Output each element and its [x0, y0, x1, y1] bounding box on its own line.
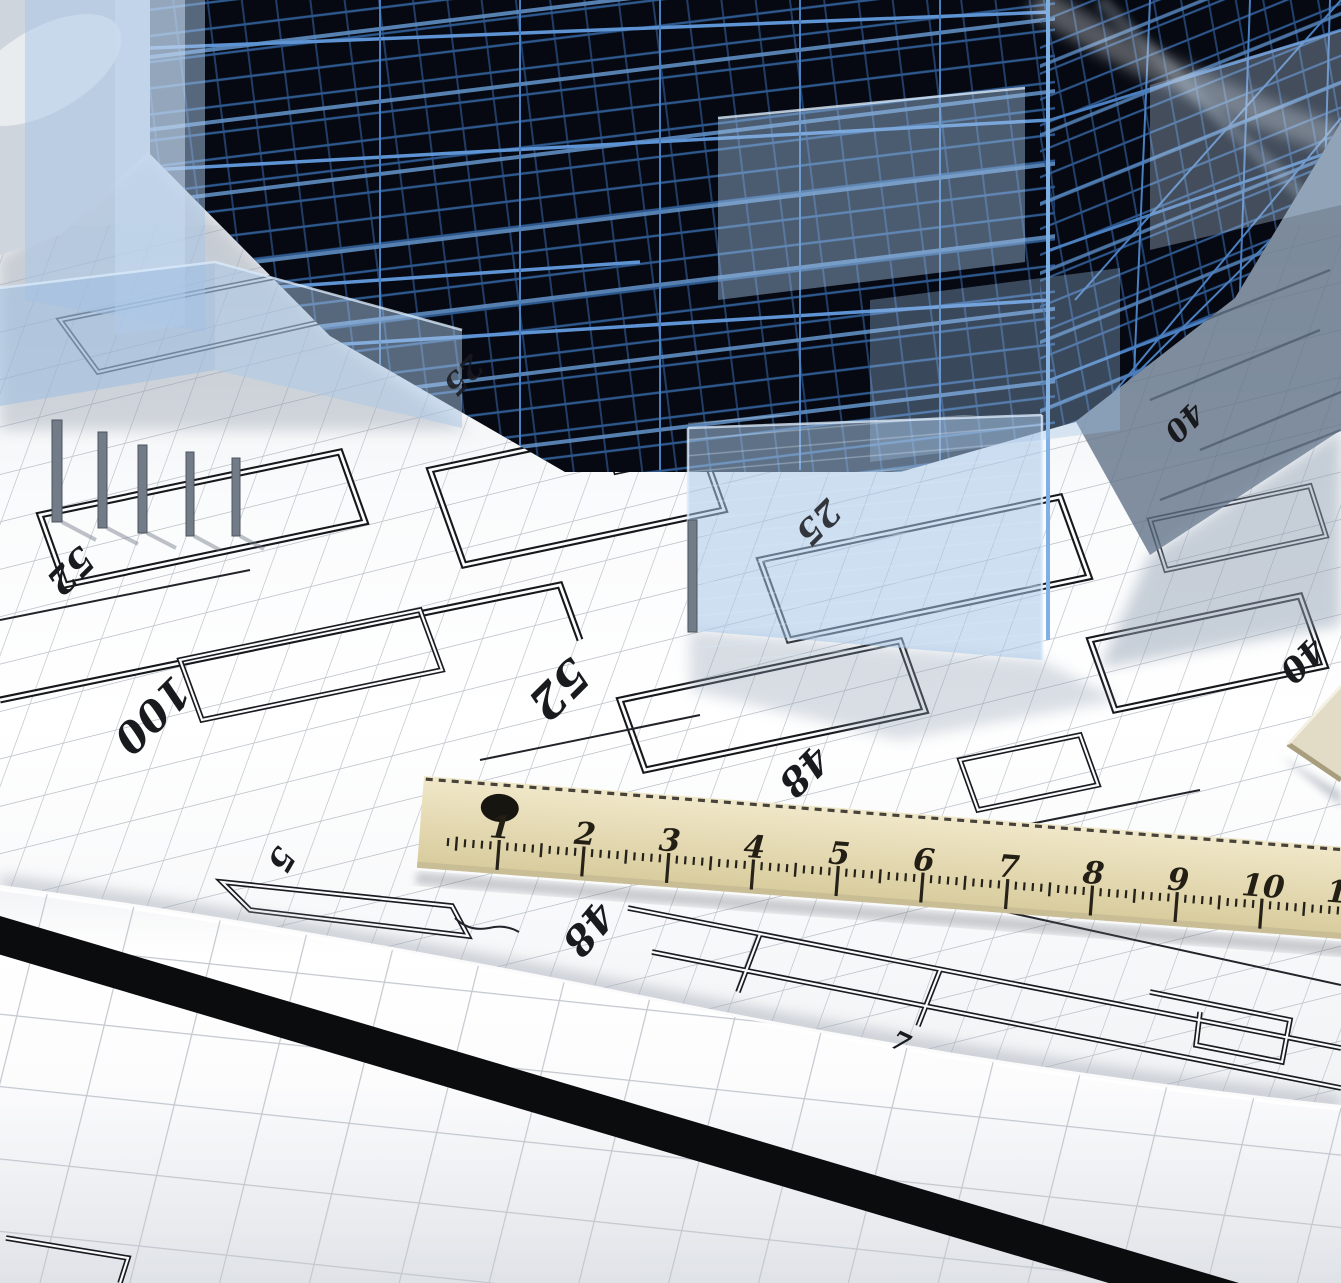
blueprint-scene: 52 100 52 48 5 48 40 40 7	[0, 0, 1341, 1283]
